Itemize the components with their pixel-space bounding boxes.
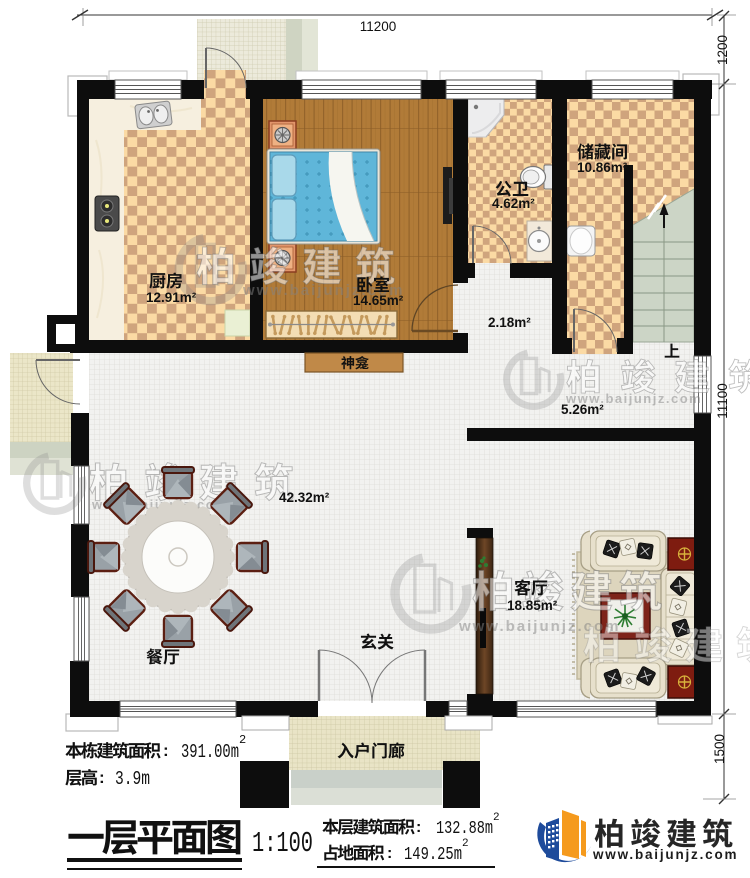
svg-text:1500: 1500 (712, 734, 727, 764)
svg-text::: : (99, 768, 105, 787)
svg-text:1200: 1200 (715, 35, 730, 65)
svg-text:18.85m²: 18.85m² (507, 598, 558, 613)
svg-text::: : (163, 741, 169, 760)
svg-text:2: 2 (462, 838, 469, 850)
svg-text:391.00m: 391.00m (181, 741, 239, 763)
svg-text:12.91m²: 12.91m² (146, 290, 197, 305)
svg-text:3.9m: 3.9m (115, 768, 150, 790)
svg-text:132.88m: 132.88m (436, 819, 493, 839)
svg-text:1:100: 1:100 (252, 827, 313, 860)
svg-text::: : (387, 845, 392, 862)
svg-text:10.86m²: 10.86m² (577, 160, 628, 175)
svg-text:11200: 11200 (360, 19, 397, 34)
svg-text:149.25m: 149.25m (404, 845, 462, 865)
svg-text:14.65m²: 14.65m² (353, 293, 404, 308)
svg-text:42.32m²: 42.32m² (279, 490, 330, 505)
svg-text:2.18m²: 2.18m² (488, 315, 531, 330)
svg-text:11100: 11100 (715, 383, 730, 419)
svg-text:5.26m²: 5.26m² (561, 402, 604, 417)
svg-text:4.62m²: 4.62m² (492, 196, 535, 211)
svg-text:www.baijunjz.com: www.baijunjz.com (592, 847, 738, 862)
svg-text:2: 2 (493, 812, 500, 824)
svg-text:2: 2 (239, 733, 246, 747)
svg-text:www.baijunjz.com: www.baijunjz.com (458, 618, 620, 635)
svg-text::: : (416, 819, 421, 836)
